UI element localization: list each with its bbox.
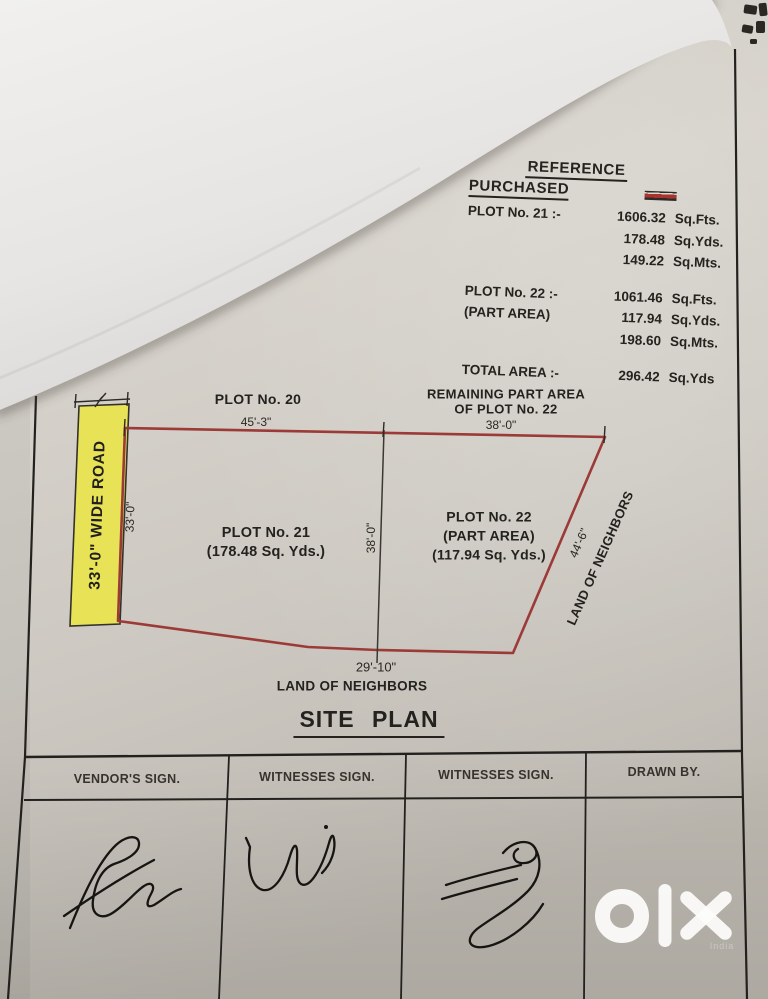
olx-watermark-subtext: India xyxy=(710,941,735,951)
row-value: 1606.32 xyxy=(590,208,667,226)
dim-bottom: 29'-10" xyxy=(356,660,396,675)
plot-divider-line xyxy=(377,430,384,663)
row-unit: Sq.Mts. xyxy=(670,333,719,350)
reference-block: REFERENCE PURCHASED PLOT No. 21 :- 1606.… xyxy=(461,156,768,395)
road-label: 33'-0" WIDE ROAD xyxy=(86,440,109,590)
dim-top-left: 45'-3" xyxy=(241,415,272,429)
row-value: 198.60 xyxy=(585,330,662,348)
paper-background xyxy=(0,0,768,999)
table-header-drawn-by: DRAWN BY. xyxy=(628,765,701,779)
reference-rows: PLOT No. 21 :- 1606.32 Sq.Fts. 178.48 Sq… xyxy=(461,203,768,395)
row-value: 296.42 xyxy=(583,367,660,385)
table-header-witness1-sign: WITNESSES SIGN. xyxy=(259,770,375,784)
row-label xyxy=(467,236,589,241)
corner-stamp-marks xyxy=(741,3,767,44)
plot22-part: (PART AREA) xyxy=(432,527,546,546)
row-label: PLOT No. 22 :- xyxy=(465,282,587,302)
row-value: 1061.46 xyxy=(586,287,663,305)
dim-top-right: 38'-0" xyxy=(486,418,517,432)
signature-table-lines xyxy=(24,751,742,999)
plot22-area: (117.94 Sq. Yds.) xyxy=(432,546,546,565)
table-header-vendor-sign: VENDOR'S SIGN. xyxy=(74,772,181,786)
vendor-signature xyxy=(64,837,181,928)
row-label: TOTAL AREA :- xyxy=(462,362,584,382)
table-header-witness2-sign: WITNESSES SIGN. xyxy=(438,768,554,782)
purchased-red-swatch xyxy=(644,191,676,201)
row-value: 149.22 xyxy=(588,251,665,269)
reference-title-text: REFERENCE xyxy=(525,158,628,182)
row-label: PLOT No. 21 :- xyxy=(468,203,590,223)
remaining-area-line1: REMAINING PART AREA xyxy=(427,387,585,402)
plot22-label: PLOT No. 22 (PART AREA) (117.94 Sq. Yds.… xyxy=(432,508,546,565)
row-value: 178.48 xyxy=(589,229,666,247)
row-unit: Sq.Yds. xyxy=(671,312,721,329)
plot22-name: PLOT No. 22 xyxy=(432,508,546,527)
row-unit: Sq.Yds xyxy=(668,370,714,387)
dim-middle: 38'-0" xyxy=(364,523,378,554)
plot21-area: (178.48 Sq. Yds.) xyxy=(207,543,325,562)
dimension-ticks xyxy=(124,419,605,443)
row-unit: Sq.Fts. xyxy=(671,290,717,307)
dim-left: 33'-0" xyxy=(122,501,137,532)
row-unit: Sq.Yds. xyxy=(674,232,724,249)
row-label xyxy=(463,337,585,342)
plot21-label: PLOT No. 21 (178.48 Sq. Yds.) xyxy=(207,524,325,562)
road-dimension-line xyxy=(74,392,130,408)
site-plan-photo: REFERENCE PURCHASED PLOT No. 21 :- 1606.… xyxy=(0,0,768,999)
plot20-label: PLOT No. 20 xyxy=(215,391,302,407)
page-crease xyxy=(0,168,420,380)
site-plan-title: SITE PLAN xyxy=(293,706,444,738)
purchased-label: PURCHASED xyxy=(468,177,569,201)
witness1-signature xyxy=(246,825,334,890)
folded-page-overlay xyxy=(0,0,768,999)
drawing-layer xyxy=(0,0,768,999)
witness2-signature xyxy=(442,842,543,947)
plot21-name: PLOT No. 21 xyxy=(207,524,325,543)
remaining-area-line2: OF PLOT No. 22 xyxy=(454,402,557,417)
row-label xyxy=(466,258,588,263)
land-of-neighbors-bottom: LAND OF NEIGHBORS xyxy=(277,679,428,694)
olx-watermark-logo xyxy=(603,884,726,947)
row-value: 117.94 xyxy=(586,309,663,327)
row-unit: Sq.Mts. xyxy=(673,254,722,271)
dim-right: 44'-6" xyxy=(566,526,591,560)
row-unit: Sq.Fts. xyxy=(674,211,720,228)
